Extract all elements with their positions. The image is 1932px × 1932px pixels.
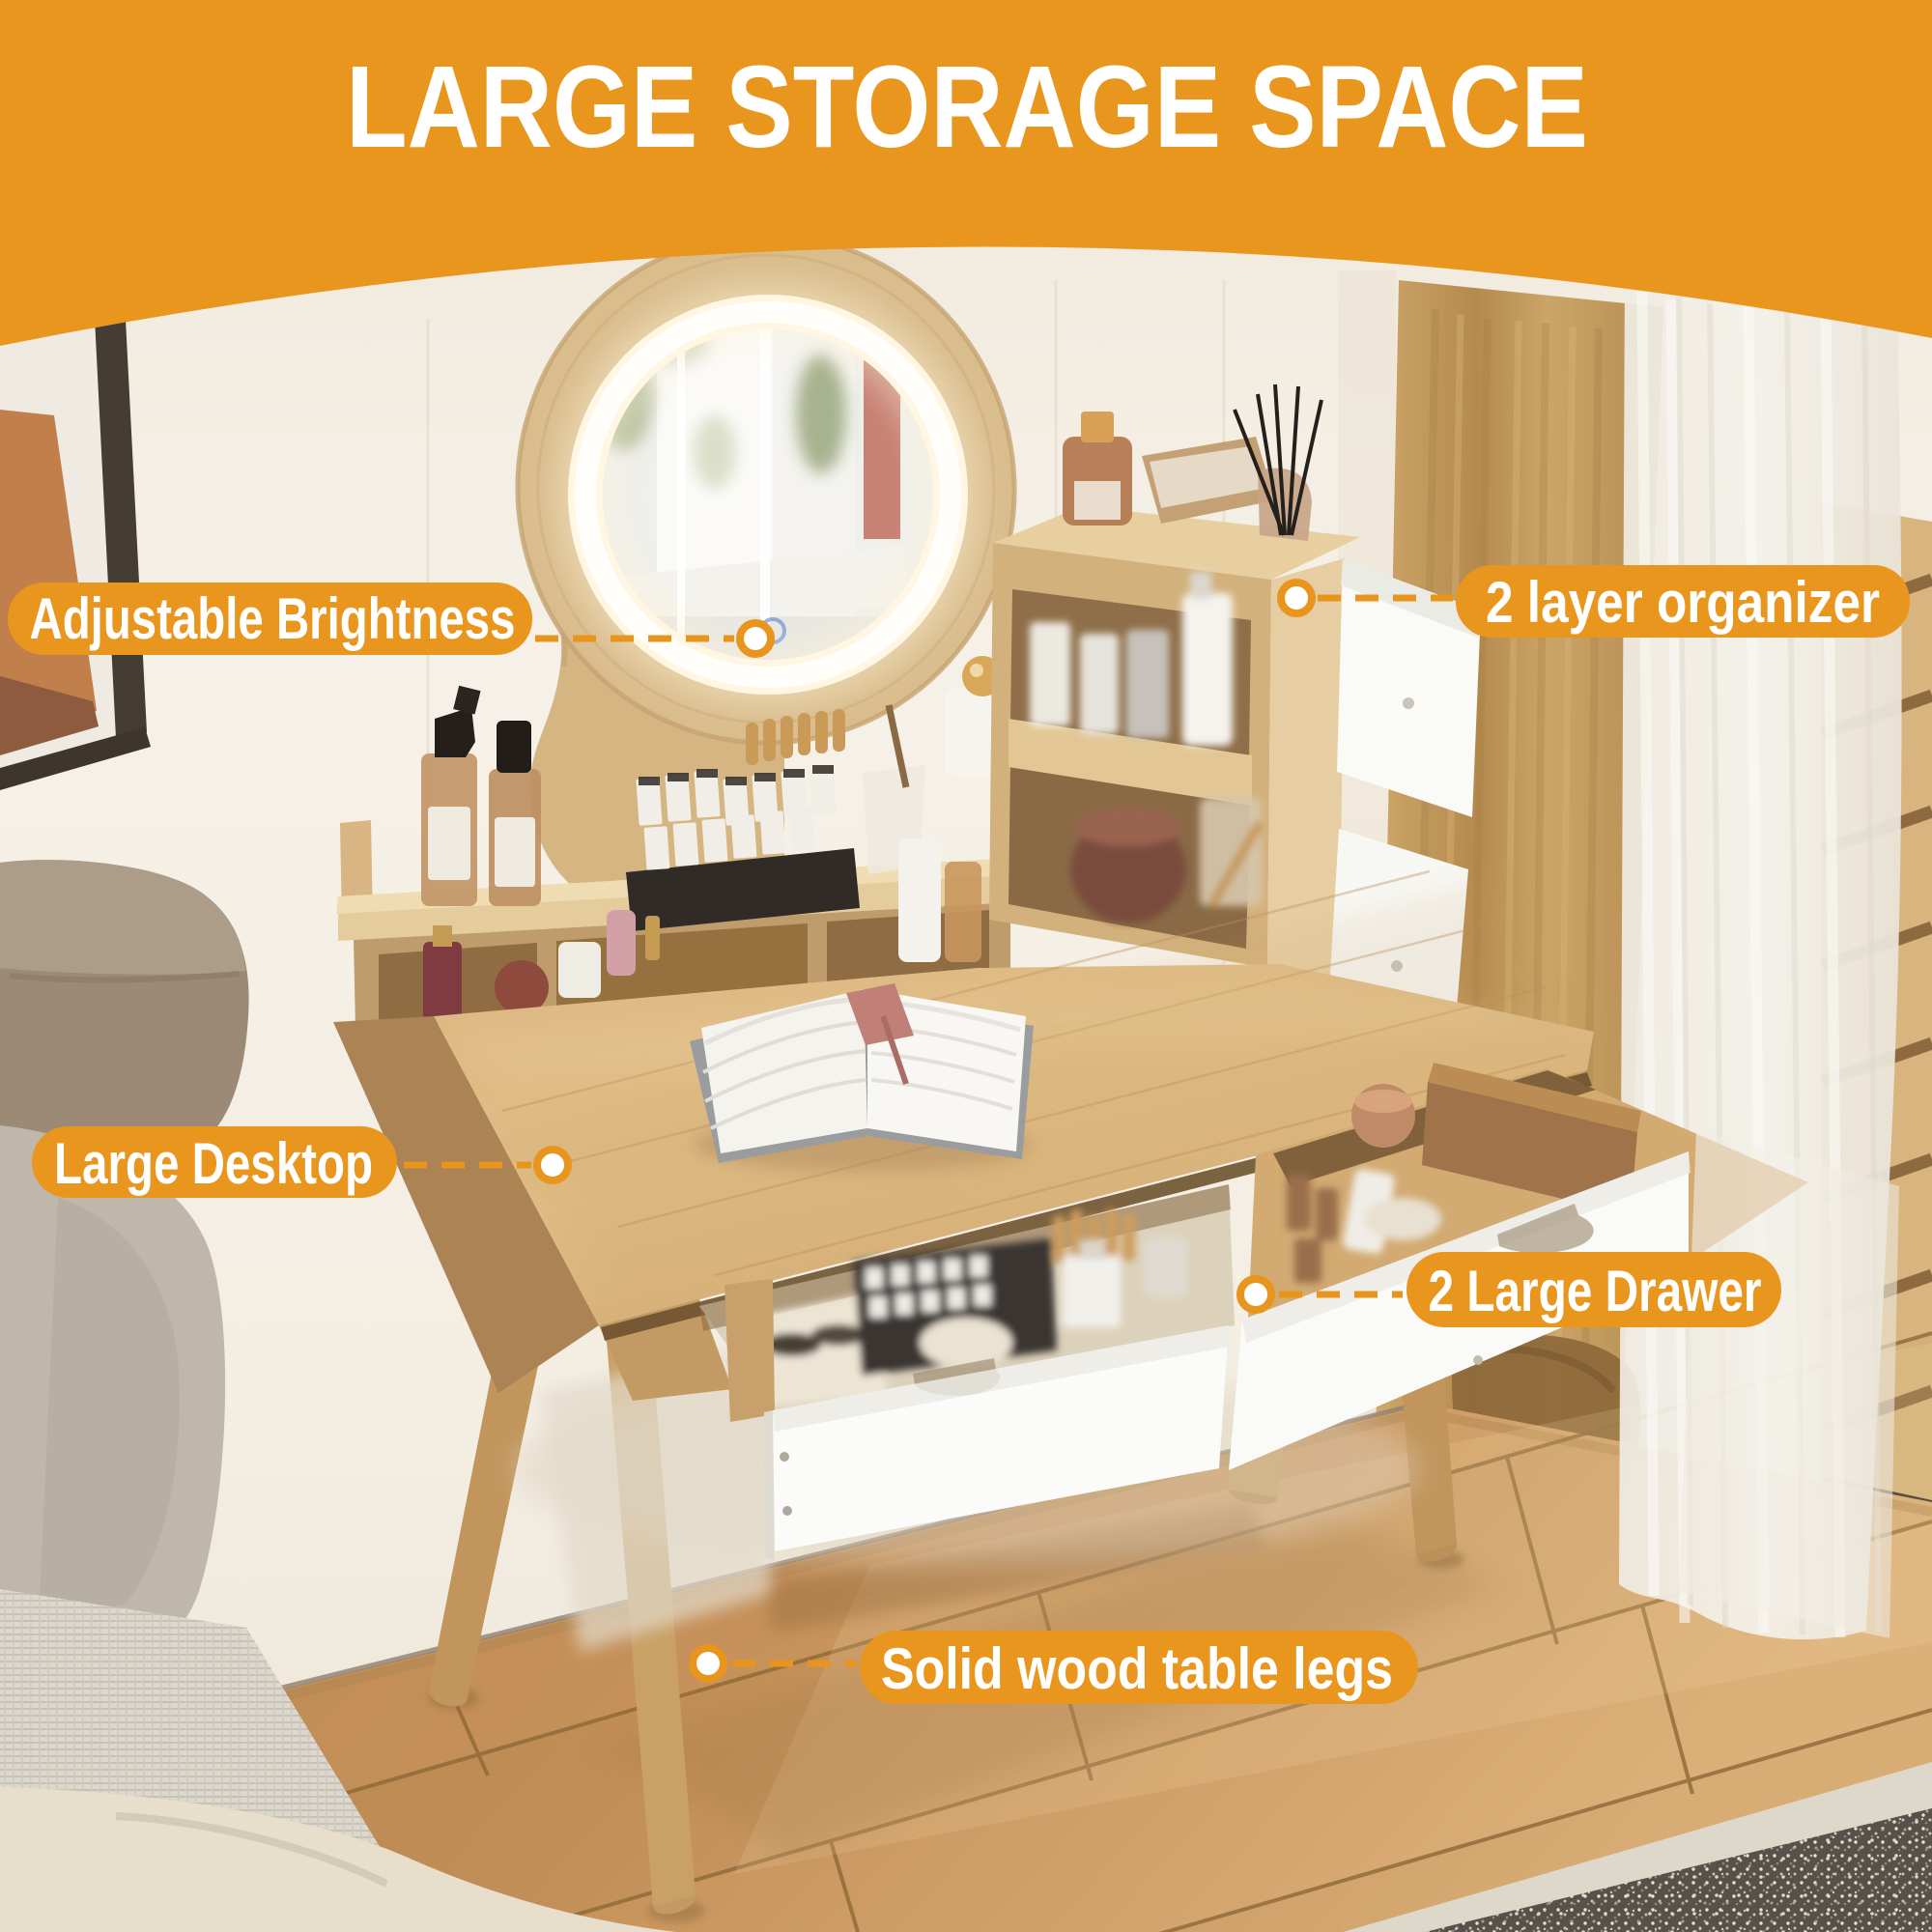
svg-text:LARGE STORAGE SPACE: LARGE STORAGE SPACE xyxy=(346,41,1588,172)
svg-text:2 layer organizer: 2 layer organizer xyxy=(1486,570,1880,635)
svg-text:Large Desktop: Large Desktop xyxy=(54,1131,373,1196)
svg-text:Adjustable Brightness: Adjustable Brightness xyxy=(30,586,516,651)
svg-text:2 Large Drawer: 2 Large Drawer xyxy=(1429,1259,1762,1323)
svg-text:Solid wood table legs: Solid wood table legs xyxy=(881,1636,1393,1701)
